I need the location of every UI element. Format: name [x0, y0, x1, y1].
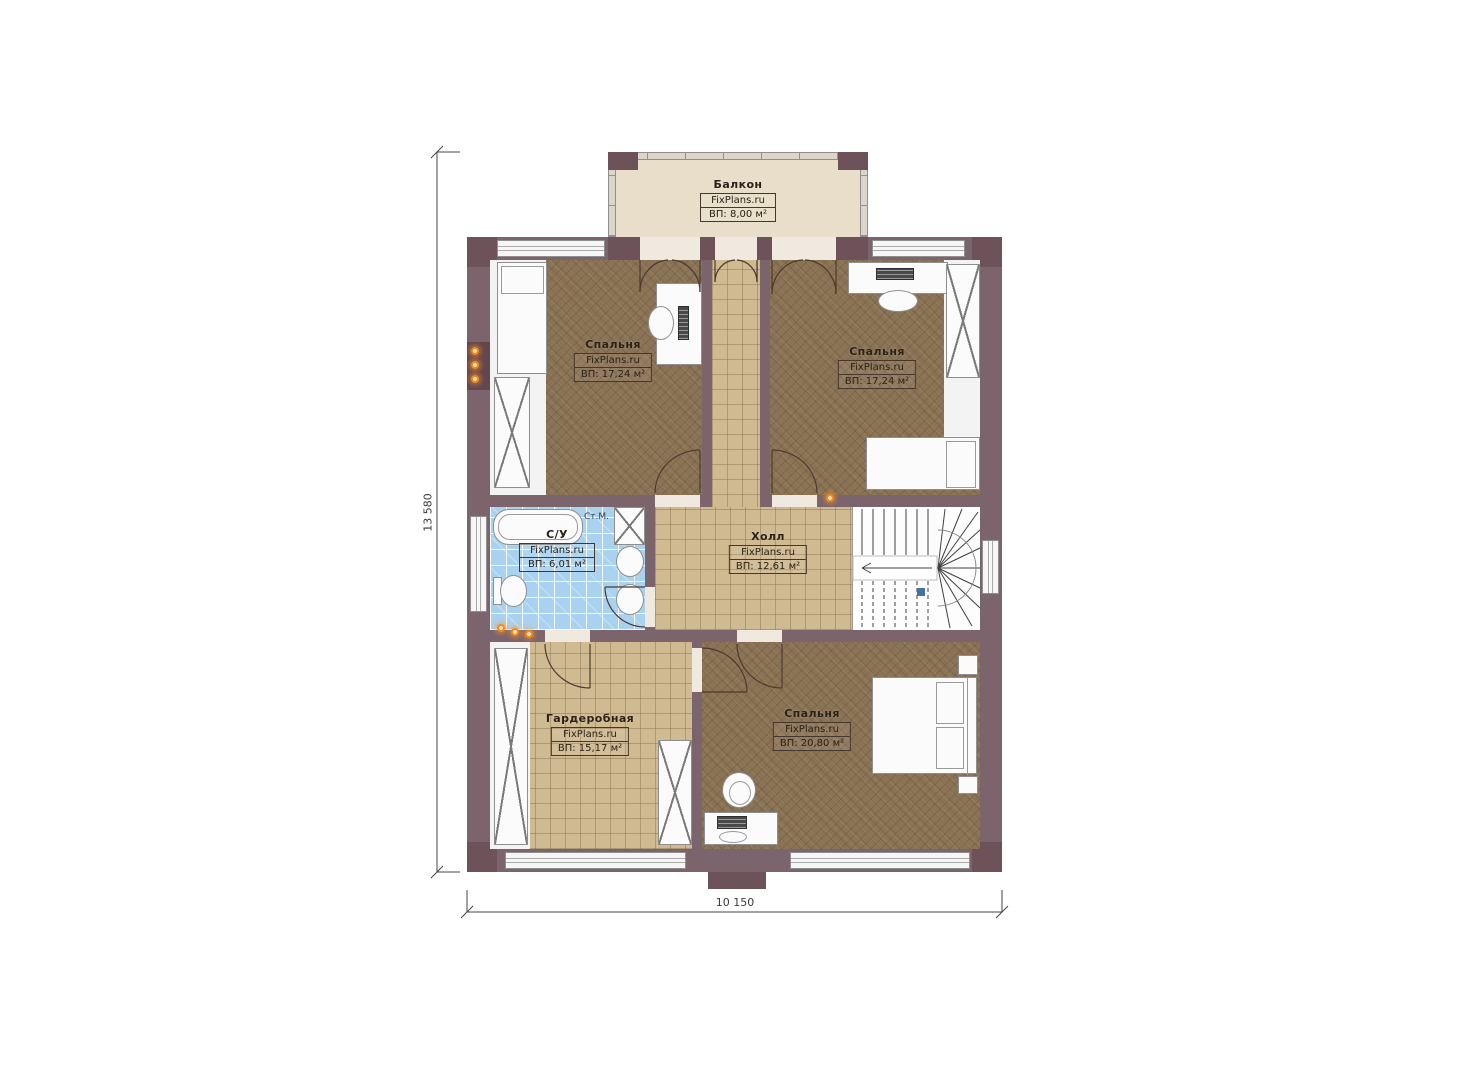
balcony-pillar-left	[608, 152, 638, 170]
pillow-tr	[946, 441, 976, 488]
stair-marker	[917, 588, 925, 596]
brand-watermark: FixPlans.ru	[552, 728, 628, 742]
top-wall-pillar-4	[836, 237, 868, 260]
door-gap-bedroom-tl	[655, 495, 700, 507]
washing-machine	[614, 507, 645, 545]
brand-watermark: FixPlans.ru	[701, 194, 775, 208]
closet-wardrobe-right	[658, 740, 692, 845]
room-name: Спальня	[574, 338, 652, 351]
brand-watermark: FixPlans.ru	[575, 354, 651, 368]
room-area: ВП: 6,01 м²	[520, 558, 594, 571]
room-area: ВП: 15,17 м²	[552, 742, 628, 755]
room-name: Спальня	[838, 345, 916, 358]
balcony-pillar-right	[838, 152, 868, 170]
nightstand-bottom	[958, 776, 978, 794]
window-top-right	[872, 240, 965, 257]
room-label-wardrobe: Гардеробная FixPlans.ru ВП: 15,17 м²	[546, 712, 634, 756]
room-name: Балкон	[700, 178, 776, 191]
room-label-hall: Холл FixPlans.ru ВП: 12,61 м²	[729, 530, 807, 574]
room-info-box: FixPlans.ru ВП: 17,24 м²	[574, 353, 652, 382]
dimension-height-label: 13 580	[422, 490, 435, 536]
room-info-box: FixPlans.ru ВП: 6,01 м²	[519, 543, 595, 572]
staircase-floor	[852, 507, 980, 630]
dimension-width-label: 10 150	[705, 896, 765, 909]
washing-machine-label: Ст.М.	[584, 512, 609, 522]
window-bottom-left	[505, 852, 686, 869]
dimension-line-vertical	[431, 146, 460, 878]
lamp-dot	[471, 361, 479, 369]
room-info-box: FixPlans.ru ВП: 8,00 м²	[700, 193, 776, 222]
bed-single-tl	[497, 262, 547, 374]
balcony-door-gap-left	[640, 237, 700, 260]
room-info-box: FixPlans.ru ВП: 20,80 м²	[773, 722, 851, 751]
closet-tl	[494, 377, 530, 488]
room-area: ВП: 8,00 м²	[701, 208, 775, 221]
desk-chair-tr	[878, 290, 918, 312]
sink-1	[616, 546, 644, 577]
lamp-dot	[525, 630, 533, 638]
headboard-line	[967, 678, 968, 775]
brand-watermark: FixPlans.ru	[520, 544, 594, 558]
lamp-dot	[497, 624, 505, 632]
desk-chair-tl	[648, 306, 674, 340]
bed-double	[872, 677, 977, 774]
door-gap-wardrobe	[545, 630, 590, 642]
sink-2	[616, 584, 644, 615]
room-info-box: FixPlans.ru ВП: 15,17 м²	[551, 727, 629, 756]
window-top-left	[497, 240, 605, 257]
chair-seat	[729, 781, 751, 805]
computer-monitor-tl	[678, 306, 689, 340]
brand-watermark: FixPlans.ru	[839, 361, 915, 375]
door-gap-wardrobe-bedroom	[692, 648, 702, 692]
nightstand-top	[958, 655, 978, 675]
lamp-dot	[471, 375, 479, 383]
toilet-bowl	[500, 575, 527, 607]
room-label-bedroom-top-left: Спальня FixPlans.ru ВП: 17,24 м²	[574, 338, 652, 382]
room-area: ВП: 17,24 м²	[575, 368, 651, 381]
dresser-bottom-bedroom	[704, 812, 778, 845]
balcony-door-gap-right	[772, 237, 836, 260]
pillow-tl	[501, 266, 544, 294]
lamp-dot	[826, 494, 834, 502]
room-label-bedroom-bottom: Спальня FixPlans.ru ВП: 20,80 м²	[773, 707, 851, 751]
tv-remote	[717, 816, 747, 829]
balcony-door-gap-center	[715, 237, 757, 260]
closet-wardrobe-left	[494, 648, 528, 845]
room-label-bedroom-top-right: Спальня FixPlans.ru ВП: 17,24 м²	[838, 345, 916, 389]
door-gap-bedroom-bottom	[737, 630, 782, 642]
dresser-dish	[719, 831, 747, 843]
lamp-dot	[511, 628, 519, 636]
room-label-bathroom: С/У FixPlans.ru ВП: 6,01 м²	[519, 528, 595, 572]
room-area: ВП: 17,24 м²	[839, 375, 915, 388]
window-bathroom-left	[470, 516, 487, 612]
chair-bottom-bedroom	[722, 772, 756, 808]
door-gap-bathroom	[645, 587, 655, 627]
room-area: ВП: 20,80 м²	[774, 737, 850, 750]
door-gap-bedroom-tr	[772, 495, 817, 507]
top-wall-pillar-1	[608, 237, 640, 260]
room-label-balcony: Балкон FixPlans.ru ВП: 8,00 м²	[700, 178, 776, 222]
room-name: Гардеробная	[546, 712, 634, 725]
keyboard-tr	[876, 268, 914, 280]
room-info-box: FixPlans.ru ВП: 12,61 м²	[729, 545, 807, 574]
room-area: ВП: 12,61 м²	[730, 560, 806, 573]
room-info-box: FixPlans.ru ВП: 17,24 м²	[838, 360, 916, 389]
room-name: Холл	[729, 530, 807, 543]
balcony-rail-top	[608, 152, 868, 160]
room-name: Спальня	[773, 707, 851, 720]
top-wall-pillar-2	[700, 237, 715, 260]
closet-tr	[946, 264, 980, 378]
window-bottom-right	[790, 852, 970, 869]
pillow-bottom-2	[936, 727, 964, 769]
floor-plan: Балкон FixPlans.ru ВП: 8,00 м² Спальня F…	[0, 0, 1474, 1080]
pillow-bottom-1	[936, 682, 964, 724]
room-name: С/У	[519, 528, 595, 541]
brand-watermark: FixPlans.ru	[730, 546, 806, 560]
chimney-pier	[708, 872, 766, 889]
brand-watermark: FixPlans.ru	[774, 723, 850, 737]
lamp-dot	[471, 347, 479, 355]
top-wall-pillar-3	[757, 237, 772, 260]
window-staircase-right	[982, 540, 999, 594]
bed-single-tr	[866, 437, 980, 490]
